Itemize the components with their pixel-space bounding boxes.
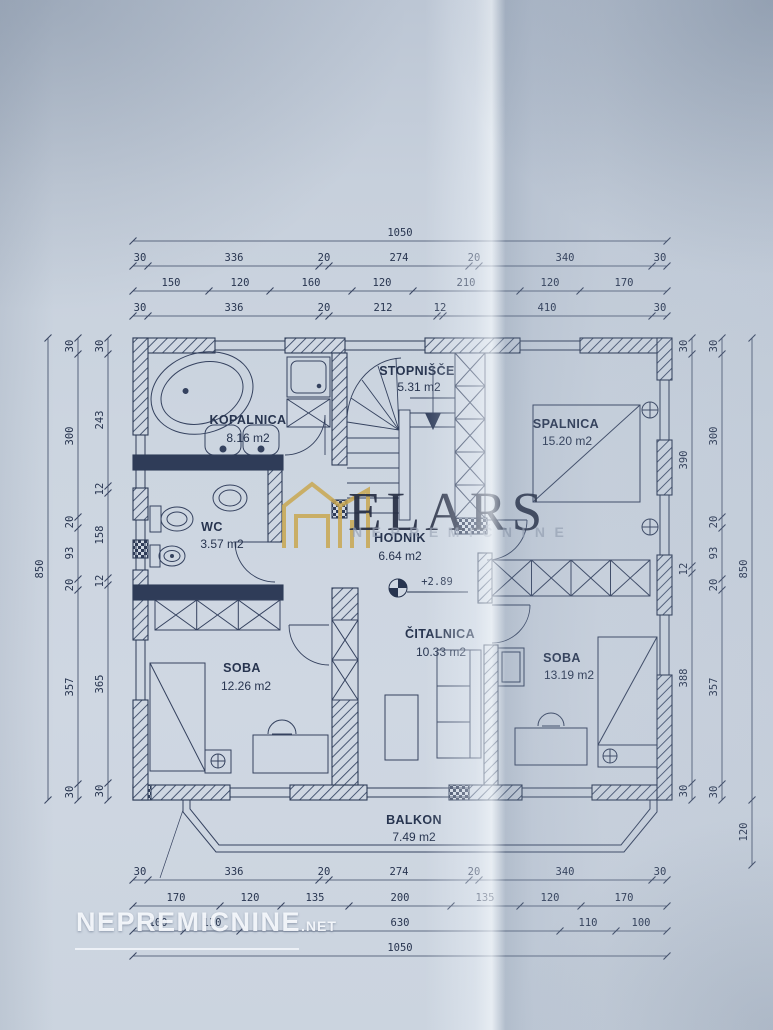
room-area-kopalnica: 8.16 m2 [226, 431, 270, 445]
dim-value: 30 [64, 786, 76, 799]
dim-value: 158 [94, 526, 106, 545]
dim-value: 100 [632, 917, 651, 929]
dim-value: 110 [203, 917, 222, 929]
dim-value: 120 [541, 892, 560, 904]
bed-soba2 [598, 637, 657, 767]
dim-value: 1050 [387, 227, 412, 239]
dim-value: 30 [64, 340, 76, 353]
room-area-hodnik: 6.64 m2 [378, 549, 422, 563]
dim-value: 20 [318, 302, 331, 314]
dim-value: 357 [64, 678, 76, 697]
dim-value: 850 [34, 560, 46, 579]
dim-value: 120 [738, 823, 750, 842]
room-area-soba2: 13.19 m2 [544, 668, 594, 682]
dim-value: 120 [541, 277, 560, 289]
dim-value: 274 [390, 866, 409, 878]
dim-value: 93 [64, 547, 76, 560]
dim-value: 30 [654, 252, 667, 264]
dim-value: 135 [306, 892, 325, 904]
dim-value: 300 [64, 427, 76, 446]
dim-value: 30 [94, 785, 106, 798]
level-marker: +2.89 [389, 576, 468, 597]
dim-value: 336 [225, 302, 244, 314]
dim-value: 20 [708, 579, 720, 592]
dim-value: 30 [678, 785, 690, 798]
bidet [150, 545, 185, 567]
dim-value: 170 [615, 277, 634, 289]
room-area-soba1: 12.26 m2 [221, 679, 271, 693]
dim-value: 30 [94, 340, 106, 353]
dim-value: 365 [94, 675, 106, 694]
dim-value: 170 [615, 892, 634, 904]
room-label-wc: WC [201, 520, 223, 534]
dim-value: 30 [134, 252, 147, 264]
dim-value: 388 [678, 669, 690, 688]
dim-value: 340 [556, 252, 575, 264]
dim-value: 12 [434, 302, 447, 314]
dim-value: 20 [468, 252, 481, 264]
dim-value: 20 [64, 516, 76, 529]
desk-soba2 [515, 713, 587, 765]
dim-value: 850 [738, 560, 750, 579]
dim-value: 30 [708, 786, 720, 799]
dim-value: 243 [94, 411, 106, 430]
shower [287, 357, 330, 397]
dim-value: 30 [134, 866, 147, 878]
dim-value: 150 [162, 277, 181, 289]
dim-value: 300 [708, 427, 720, 446]
dim-value: 212 [374, 302, 393, 314]
dim-value: 110 [579, 917, 598, 929]
room-label-hodnik: HODNIK [374, 531, 426, 545]
dim-value: 390 [678, 451, 690, 470]
dim-value: 30 [654, 866, 667, 878]
dim-value: 630 [391, 917, 410, 929]
dim-value: 210 [457, 277, 476, 289]
dim-value: 160 [302, 277, 321, 289]
dim-value: 93 [708, 547, 720, 560]
dim-value: 20 [468, 866, 481, 878]
dim-value: 170 [167, 892, 186, 904]
dim-value: 135 [476, 892, 495, 904]
dim-value: 20 [318, 252, 331, 264]
dim-value: 30 [678, 340, 690, 353]
desk-soba1 [253, 720, 328, 773]
dim-value: 120 [373, 277, 392, 289]
dim-value: 410 [538, 302, 557, 314]
dim-value: 20 [318, 866, 331, 878]
level-value: +2.89 [421, 576, 453, 588]
room-label-kopalnica: KOPALNICA [210, 413, 287, 427]
room-area-stopnisce: 5.31 m2 [397, 380, 441, 394]
room-area-balkon: 7.49 m2 [392, 830, 436, 844]
dim-value: 30 [708, 340, 720, 353]
room-label-citalnica: ČITALNICA [405, 626, 475, 641]
room-area-spalnica: 15.20 m2 [542, 434, 592, 448]
dim-value: 274 [390, 252, 409, 264]
dim-value: 12 [678, 563, 690, 576]
dim-value: 357 [708, 678, 720, 697]
shelf-soba2 [498, 648, 524, 686]
sofa-citalnica [437, 650, 481, 758]
dim-value: 30 [134, 302, 147, 314]
room-label-stopnisce: STOPNIŠČE [379, 363, 455, 378]
room-label-spalnica: SPALNICA [533, 417, 599, 431]
dim-value: 340 [556, 866, 575, 878]
room-area-citalnica: 10.33 m2 [416, 645, 466, 659]
dim-value: 120 [241, 892, 260, 904]
dim-value: 12 [94, 483, 106, 496]
dim-value: 1050 [387, 942, 412, 954]
toilet [150, 506, 193, 532]
dim-value: 336 [225, 866, 244, 878]
dim-value: 20 [708, 516, 720, 529]
dim-value: 20 [64, 579, 76, 592]
room-label-balkon: BALKON [386, 813, 442, 827]
table-citalnica [385, 695, 418, 760]
dim-value: 336 [225, 252, 244, 264]
room-label-soba1: SOBA [223, 661, 261, 675]
room-label-soba2: SOBA [543, 651, 581, 665]
dim-value: 12 [94, 575, 106, 588]
bed-soba1 [150, 663, 231, 773]
window-axis-markers [642, 402, 658, 535]
floor-plan-photo: +2.89 KOPALNICA 8.16 m2 STOPNIŠČE 5.31 m… [0, 0, 773, 1030]
floor-plan-drawing: +2.89 KOPALNICA 8.16 m2 STOPNIŠČE 5.31 m… [0, 0, 773, 1030]
dim-value: 200 [391, 892, 410, 904]
room-area-wc: 3.57 m2 [200, 537, 244, 551]
wc-basin [213, 485, 247, 511]
dim-value: 30 [654, 302, 667, 314]
dim-value: 120 [231, 277, 250, 289]
dim-value: 100 [149, 917, 168, 929]
